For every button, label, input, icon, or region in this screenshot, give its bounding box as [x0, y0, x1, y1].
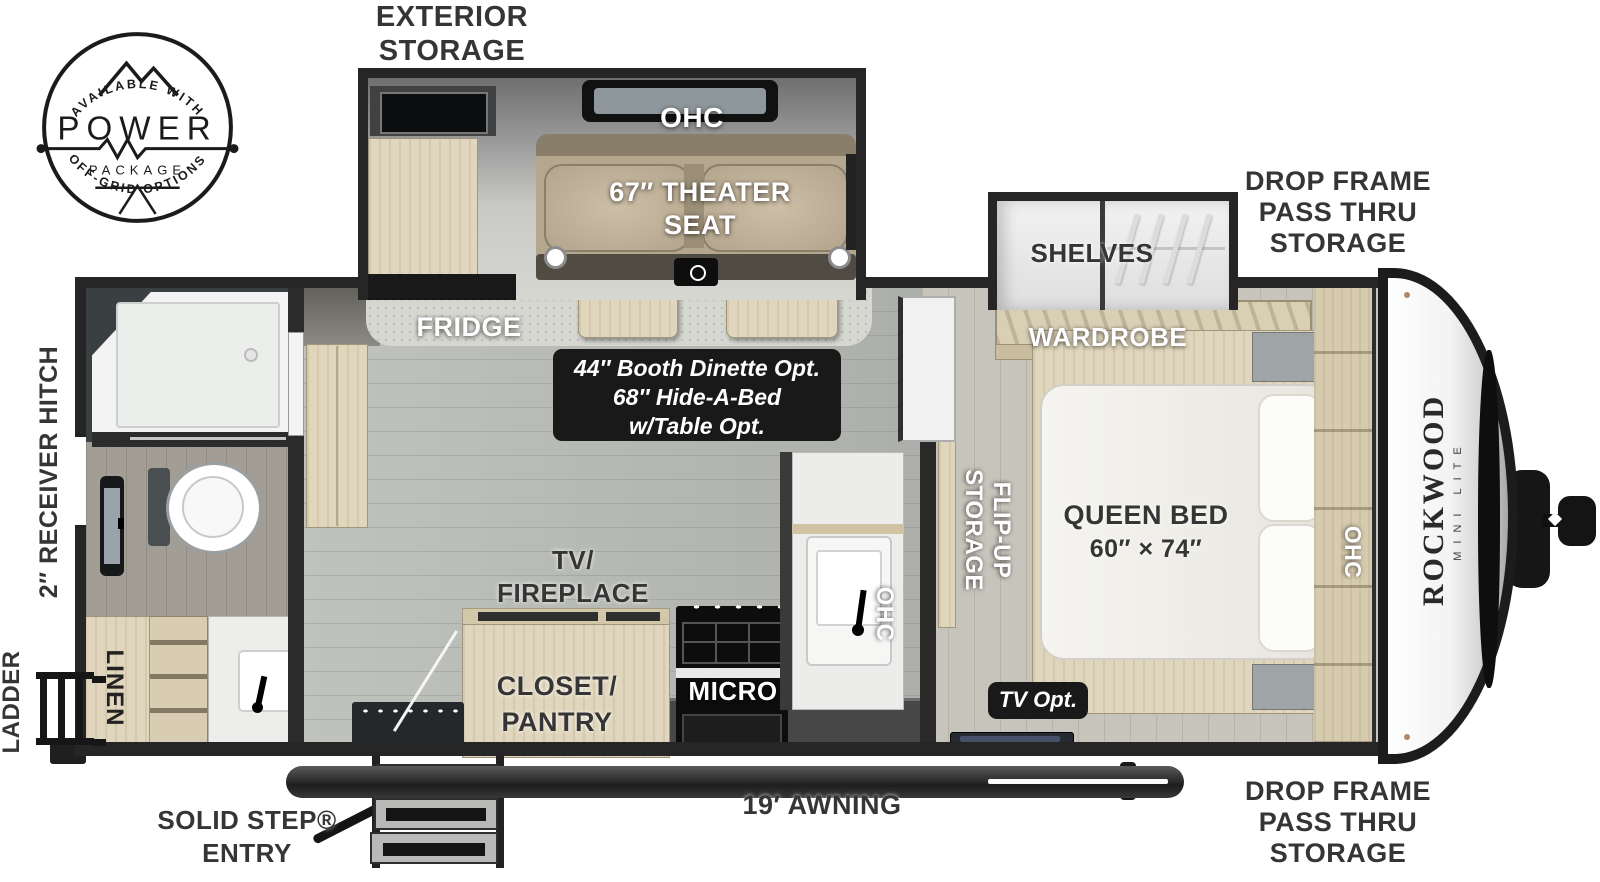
label-drop-frame-top: DROP FRAME PASS THRU STORAGE [1238, 166, 1438, 259]
brand-name: ROCKWOOD [1418, 350, 1450, 650]
cabinet-divider [336, 346, 338, 526]
ladder-rung [40, 674, 47, 740]
cabinet-base [368, 274, 516, 300]
logo-word: POWER [57, 111, 217, 148]
label-tv-fireplace: TV/ FIREPLACE [473, 544, 673, 610]
cabinet-slot [606, 612, 660, 621]
fridge [380, 92, 488, 134]
label-theater-seat: 67″ THEATER SEAT [560, 176, 840, 242]
kitchen-faucet-head [852, 624, 864, 636]
awning-highlight [988, 779, 1168, 784]
pillow [1258, 524, 1322, 652]
exterior-wall [75, 277, 360, 288]
label-closet-pantry: CLOSET/ PANTRY [455, 668, 659, 740]
stove-burners-icon [682, 622, 782, 664]
label-solid-step-entry: SOLID STEP® ENTRY [147, 804, 347, 870]
label-micro: MICRO [673, 676, 793, 707]
logo-dot-right [229, 144, 238, 153]
kitchen-wall [780, 452, 792, 710]
hitch-coupler [1558, 496, 1596, 546]
stove-knobs-icon [680, 598, 784, 610]
pillow [1258, 394, 1322, 522]
shower-door-track [130, 437, 286, 440]
label-awning: 19′ AWNING [722, 790, 922, 821]
floorplan-diagram: AVAILABLE WITH POWER PACKAGE OFF-GRID OP… [0, 0, 1600, 882]
cabinet-knob [118, 518, 124, 529]
ladder-rung [58, 674, 65, 740]
counter-trim [792, 524, 904, 534]
exterior-wall [75, 742, 1388, 756]
oven [682, 714, 782, 744]
label-linen: LINEN [100, 623, 128, 753]
label-ladder: LADDER [0, 632, 26, 772]
console-button-icon [690, 265, 706, 281]
label-queen-bed: QUEEN BED 60″ × 74″ [1040, 498, 1252, 566]
exterior-wall [866, 277, 990, 288]
toilet-seat [182, 476, 244, 538]
label-shelves: SHELVES [1022, 238, 1162, 269]
dinette-option-badge: 44″ Booth Dinette Opt. 68″ Hide-A-Bed w/… [553, 349, 841, 441]
closet-partition [898, 296, 956, 442]
cabinet-slot [478, 612, 598, 621]
flip-up-storage-panel [938, 428, 956, 628]
label-fridge: FRIDGE [394, 312, 544, 343]
exterior-wall [1236, 277, 1388, 288]
side-window [846, 154, 856, 250]
bathroom-door [288, 332, 304, 436]
ladder-rung [76, 674, 83, 740]
shower-pan [116, 302, 280, 428]
label-wardrobe: WARDROBE [1008, 322, 1208, 353]
label-ohc-bedroom: OHC [1338, 502, 1366, 602]
bath-faucet-head [252, 702, 263, 713]
fridge-cabinet [368, 138, 478, 296]
rivet-icon [1404, 734, 1410, 740]
label-drop-frame-bottom: DROP FRAME PASS THRU STORAGE [1238, 776, 1438, 869]
step-tread [383, 843, 485, 856]
label-exterior-storage: EXTERIOR STORAGE [352, 0, 552, 68]
brand-subtitle: MINI LITE [1450, 350, 1466, 650]
vanity-shelves [148, 616, 208, 748]
logo-dot-left [37, 144, 46, 153]
label-flip-up-storage: FLIP-UP STORAGE [959, 420, 1015, 640]
step-tread [386, 808, 486, 821]
rear-window [75, 434, 86, 528]
shower-drain [244, 348, 258, 362]
label-receiver-hitch: 2″ RECEIVER HITCH [35, 322, 63, 622]
cup-holder-icon [544, 246, 567, 269]
front-cap-window [1478, 350, 1500, 688]
tv-option-badge: TV Opt. [988, 682, 1088, 719]
bedroom-wall [920, 436, 936, 742]
brand-logo: ROCKWOOD MINI LITE [1418, 350, 1474, 650]
label-ohc-slide: OHC [592, 102, 792, 134]
label-ohc-kitchen: OHC [870, 564, 898, 664]
rivet-icon [1404, 292, 1410, 298]
power-package-logo: AVAILABLE WITH POWER PACKAGE OFF-GRID OP… [27, 17, 248, 238]
